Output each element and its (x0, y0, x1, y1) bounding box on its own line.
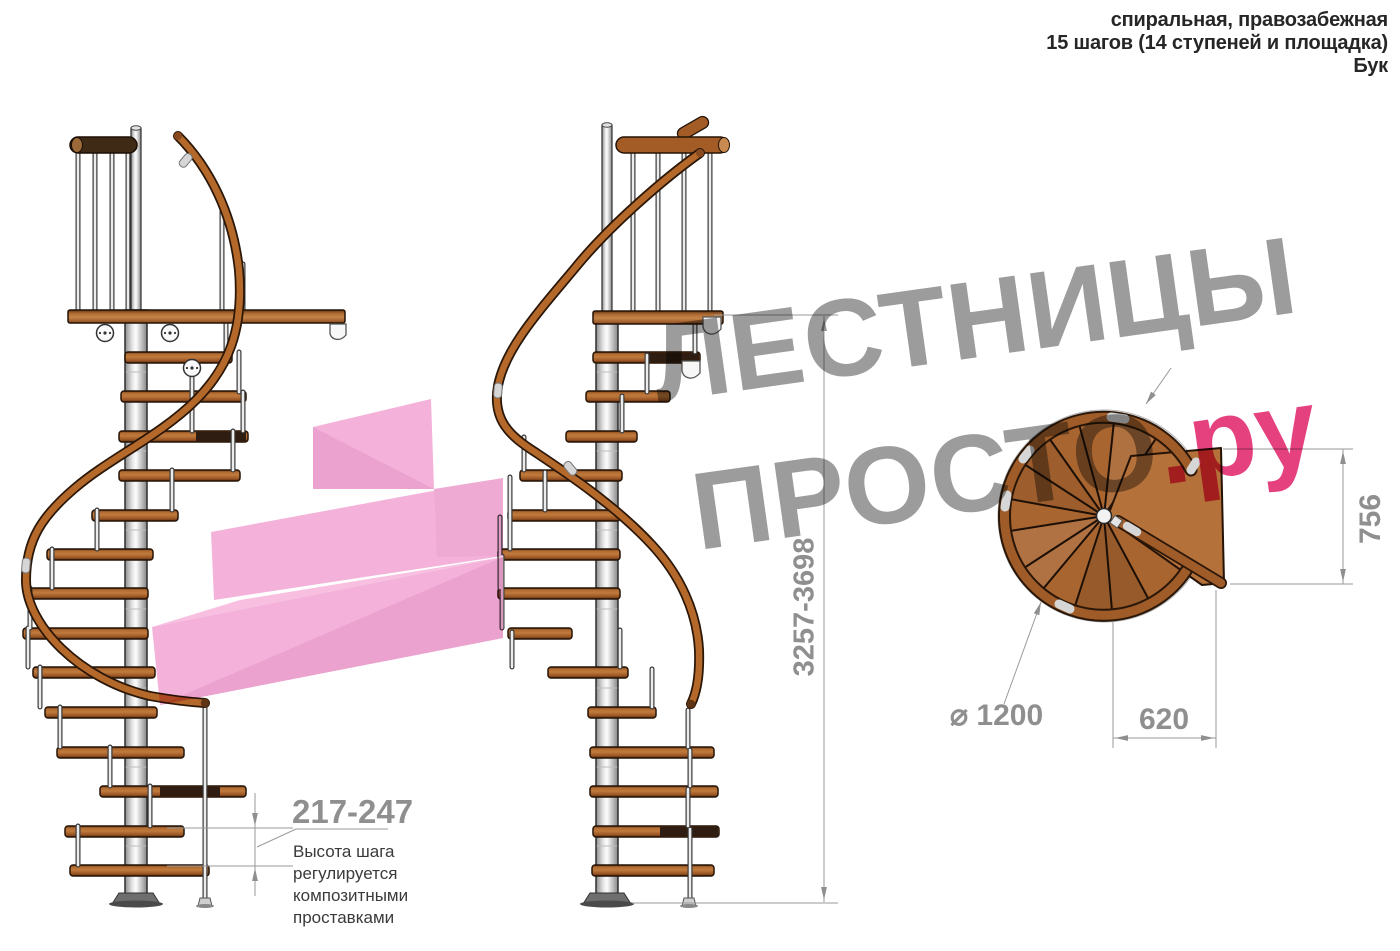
left-platform-bracket (330, 324, 346, 339)
title-steps: 15 шагов (14 ступеней и площадка) (1046, 32, 1388, 55)
right-elevation-view (493, 114, 729, 908)
drawing-sheet: 3257-3698 756 620 ⌀ 1200 217-247 спираль… (0, 0, 1400, 951)
dimension-platform-depth: 756 (1354, 494, 1387, 544)
dimension-total-height: 3257-3698 (789, 538, 821, 677)
plan-view (998, 410, 1224, 622)
left-connector-discs (97, 325, 201, 377)
pink-arrow-watermark (152, 399, 503, 705)
title-type: спиральная, правозабежная (1046, 9, 1388, 32)
right-platform-handrail (616, 114, 730, 153)
left-platform-board (68, 310, 345, 323)
right-tread-brackets (682, 317, 721, 378)
dimension-diameter: ⌀ 1200 (950, 699, 1043, 732)
left-platform-handrail (70, 137, 137, 153)
staircase-drawing: 3257-3698 756 620 ⌀ 1200 217-247 (0, 0, 1400, 951)
left-platform-balusters (78, 152, 243, 310)
title-material: Бук (1046, 55, 1388, 78)
dimension-platform-width: 620 (1139, 703, 1189, 736)
dimension-step-height: 217-247 (292, 793, 413, 830)
title-block: спиральная, правозабежная 15 шагов (14 с… (1046, 9, 1388, 78)
step-height-note: Высота шага регулируется композитными пр… (293, 841, 408, 929)
plan-center-pole (1097, 509, 1112, 524)
